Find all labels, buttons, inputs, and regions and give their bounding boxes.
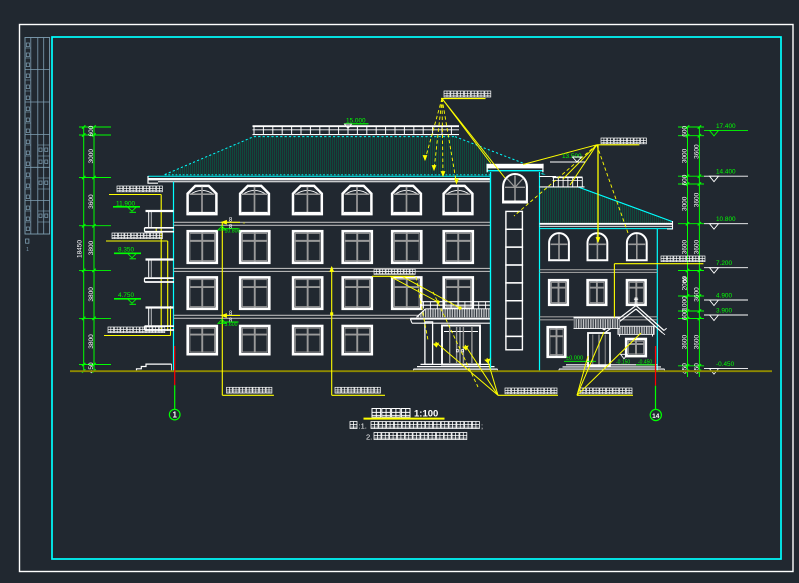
svg-text:-0.150: -0.150: [616, 359, 630, 365]
svg-text:17.400: 17.400: [716, 123, 736, 130]
svg-text:8: 8: [683, 276, 688, 285]
svg-text:2.: 2.: [366, 433, 372, 442]
svg-text:13.500: 13.500: [562, 153, 582, 160]
svg-text:1000: 1000: [682, 296, 689, 311]
svg-text:3000: 3000: [682, 196, 689, 211]
svg-text::1.: :1.: [359, 422, 367, 431]
svg-text:3.900: 3.900: [716, 307, 732, 314]
svg-text:600: 600: [682, 126, 689, 137]
svg-text:3800: 3800: [88, 334, 95, 349]
svg-text:14.400: 14.400: [716, 169, 736, 176]
svg-text:=: =: [243, 220, 246, 225]
svg-text:;: ;: [481, 422, 483, 431]
svg-text:10.800: 10.800: [716, 216, 736, 223]
svg-text:3800: 3800: [88, 240, 95, 255]
svg-text:3000: 3000: [88, 149, 95, 164]
svg-text:3800: 3800: [88, 287, 95, 302]
svg-text:3600: 3600: [682, 239, 689, 254]
svg-text:±0.000: ±0.000: [566, 356, 583, 362]
svg-text:3000: 3000: [682, 148, 689, 163]
svg-text:3600: 3600: [694, 144, 701, 159]
svg-text:7.200: 7.200: [716, 260, 732, 267]
svg-text:450: 450: [694, 363, 701, 374]
svg-text:-0.450: -0.450: [716, 361, 735, 368]
svg-text:18450: 18450: [77, 240, 84, 258]
svg-text:3600: 3600: [694, 239, 701, 254]
svg-text:3.600: 3.600: [225, 322, 238, 328]
svg-text:14: 14: [652, 413, 660, 420]
svg-text:1: 1: [26, 247, 29, 253]
svg-text:1: 1: [172, 411, 177, 420]
svg-text:3600: 3600: [694, 335, 701, 350]
svg-text:600: 600: [682, 174, 689, 185]
svg-text:3600: 3600: [694, 192, 701, 207]
svg-text:600: 600: [682, 309, 689, 320]
svg-text:3600: 3600: [694, 287, 701, 302]
svg-text:450: 450: [682, 363, 689, 374]
svg-text:3600: 3600: [682, 335, 689, 350]
svg-text:3600: 3600: [88, 194, 95, 209]
svg-text:600: 600: [88, 125, 95, 136]
svg-text:10.800: 10.800: [225, 228, 241, 234]
svg-text:4.900: 4.900: [716, 292, 732, 299]
